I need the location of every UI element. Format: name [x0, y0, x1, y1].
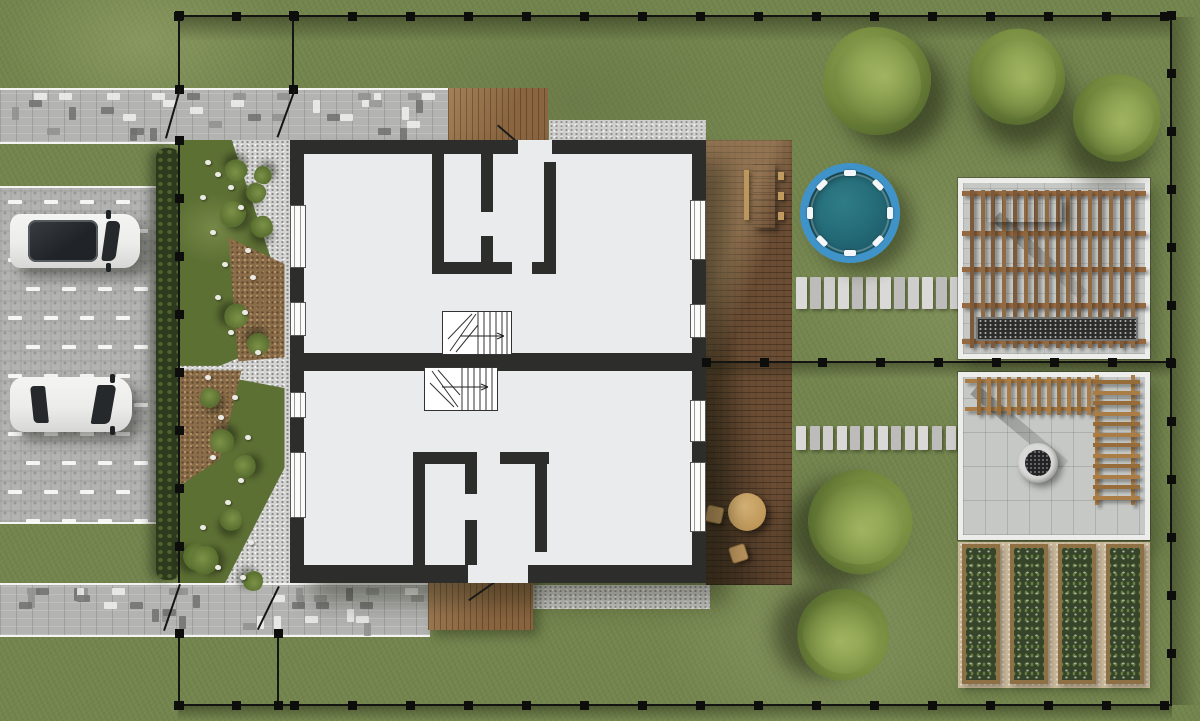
fence-post	[274, 701, 283, 710]
round-table	[728, 493, 766, 531]
pergola-slat	[1093, 475, 1140, 479]
white-stone	[228, 330, 234, 335]
stepping-stone	[810, 426, 820, 450]
lane-dash	[8, 490, 22, 494]
stairs-lower-unit	[424, 367, 498, 411]
bench	[744, 170, 749, 220]
fence-post	[696, 12, 705, 21]
site-plan	[0, 0, 1200, 721]
lane-dash	[80, 316, 94, 320]
interior-wall	[465, 520, 477, 565]
paver-brick	[19, 602, 32, 609]
lane-dash	[44, 432, 58, 436]
car-windshield	[91, 385, 117, 424]
pergola-slat	[1027, 377, 1031, 415]
paver-brick	[36, 588, 49, 595]
pergola-slat	[1093, 485, 1140, 489]
fence-line	[178, 633, 180, 705]
paver-brick	[34, 93, 47, 100]
white-stone	[215, 172, 221, 177]
tree	[780, 572, 907, 699]
paver-brick	[231, 100, 244, 107]
paver-brick	[402, 107, 409, 120]
white-stone	[232, 395, 238, 400]
fence-post	[928, 12, 937, 21]
pergola-slat	[1093, 464, 1140, 468]
lane-dash	[44, 200, 58, 204]
fence-post	[1166, 358, 1175, 367]
fence-post	[406, 12, 415, 21]
fence-post	[754, 701, 763, 710]
lane-dash	[134, 287, 148, 291]
lane-dash	[134, 403, 148, 407]
fence-post	[290, 701, 299, 710]
paver-brick	[313, 100, 320, 113]
fence-post	[175, 252, 184, 261]
lane-dash	[98, 519, 112, 523]
car-mirror	[106, 210, 111, 219]
paver-brick	[364, 623, 371, 636]
pergola-slat	[1093, 412, 1140, 416]
window	[290, 302, 306, 336]
pergola-slat	[1037, 377, 1041, 415]
fence-post	[986, 701, 995, 710]
lane-dash	[62, 519, 76, 523]
lane-dash	[116, 316, 130, 320]
paver-brick	[416, 100, 423, 113]
paver-brick	[305, 616, 318, 623]
tree	[823, 27, 931, 135]
pergola-slat	[1093, 401, 1140, 405]
fence-post	[1167, 533, 1176, 542]
tree	[950, 10, 1084, 144]
interior-wall	[432, 154, 444, 274]
fence-post	[1167, 301, 1176, 310]
paver-brick	[107, 93, 120, 100]
tree	[793, 455, 927, 589]
stepping-stone	[878, 426, 888, 450]
pergola-slat	[1007, 377, 1011, 415]
fence-post	[232, 701, 241, 710]
fence-post	[992, 358, 1001, 367]
pergola-slat	[1093, 380, 1140, 384]
white-stone	[215, 295, 221, 300]
pergola-slat	[987, 377, 991, 415]
fence-post	[1167, 127, 1176, 136]
patio-table	[986, 196, 1062, 222]
fence-post	[1167, 11, 1176, 20]
paver-brick	[179, 616, 186, 629]
fence-post	[754, 12, 763, 21]
fence-post	[1050, 358, 1059, 367]
fence-post	[1044, 701, 1053, 710]
paver-brick	[292, 602, 305, 609]
fence-post	[464, 12, 473, 21]
car-rear-glass	[30, 386, 49, 423]
paver-brick	[277, 93, 290, 100]
lane-dash	[116, 490, 130, 494]
lane-dash	[98, 345, 112, 349]
garden-bed	[1106, 544, 1144, 684]
pergola-slat	[1093, 433, 1140, 437]
fence-post	[175, 629, 184, 638]
fence-post	[638, 701, 647, 710]
car-sedan	[10, 377, 132, 432]
lane-dash	[116, 432, 130, 436]
fence-post	[812, 701, 821, 710]
car-mirror	[110, 426, 115, 435]
window	[290, 452, 306, 518]
white-stone	[228, 185, 234, 190]
paver-brick	[152, 609, 159, 622]
fence-post	[406, 701, 415, 710]
paver-brick	[123, 114, 136, 121]
fence-post	[522, 701, 531, 710]
fence-post	[348, 12, 357, 21]
lane-dash	[26, 287, 40, 291]
house-unit-bottom-floor	[304, 371, 692, 565]
garden-bed	[1058, 544, 1096, 684]
stepping-stone	[936, 277, 947, 309]
stepping-stone	[850, 426, 860, 450]
stepping-stone	[824, 277, 835, 309]
paver-brick	[209, 121, 222, 128]
stepping-stone	[866, 277, 877, 309]
fence-post	[1167, 649, 1176, 658]
white-stone	[238, 205, 244, 210]
paver-brick	[12, 107, 19, 120]
paver-brick	[327, 114, 340, 121]
lane-dash	[98, 461, 112, 465]
car-mirror	[110, 374, 115, 383]
white-stone	[245, 248, 251, 253]
fence-post	[1167, 475, 1176, 484]
paver-brick	[193, 595, 200, 608]
lane-dash	[116, 200, 130, 204]
lane-dash	[134, 519, 148, 523]
white-stone	[240, 575, 246, 580]
white-stone	[218, 415, 224, 420]
interior-wall	[481, 154, 493, 212]
pergola-beam	[962, 267, 1146, 272]
stepping-stone-path-upper	[796, 277, 964, 310]
stool	[778, 212, 784, 220]
paver-brick	[130, 602, 143, 609]
paver-brick	[360, 602, 373, 609]
fence-post	[760, 358, 769, 367]
pool-ladder-tick	[815, 178, 828, 191]
white-stone	[222, 262, 228, 267]
lane-dash	[44, 316, 58, 320]
car-roof-glass	[28, 220, 98, 262]
paver-brick	[369, 100, 382, 107]
pool-ladder-tick	[887, 207, 893, 219]
white-stone	[238, 478, 244, 483]
white-stone	[200, 525, 206, 530]
paver-brick	[408, 93, 421, 100]
paver-brick	[316, 602, 329, 609]
lane-dash	[26, 345, 40, 349]
pool-ladder-tick	[872, 178, 885, 191]
window	[690, 400, 706, 442]
pergola-slat	[1093, 391, 1140, 395]
pergola-slat	[1047, 377, 1051, 415]
stool	[778, 192, 784, 200]
stepping-stone	[880, 277, 891, 309]
white-stone	[248, 540, 254, 545]
car-windshield	[101, 221, 121, 261]
lane-dash	[80, 490, 94, 494]
fence-post	[175, 426, 184, 435]
paver-brick	[112, 588, 125, 595]
interior-wall	[413, 452, 477, 464]
lane-dash	[8, 316, 22, 320]
fence-post	[175, 136, 184, 145]
paver-brick	[340, 114, 353, 121]
pool-ladder-tick	[872, 235, 885, 248]
pool-ladder-tick	[844, 170, 856, 176]
fence-post	[1167, 69, 1176, 78]
garden-beds	[958, 542, 1150, 688]
fence-post	[870, 701, 879, 710]
stepping-stone-path-lower	[796, 426, 960, 452]
white-stone	[200, 195, 206, 200]
stepping-stone	[891, 426, 901, 450]
dining-table	[753, 162, 775, 228]
window	[290, 392, 306, 418]
fence-post	[274, 629, 283, 638]
white-stone	[225, 500, 231, 505]
fence-post	[1102, 701, 1111, 710]
fence-post	[175, 701, 184, 710]
car-mirror	[106, 263, 111, 272]
lane-dash	[134, 461, 148, 465]
paver-brick	[29, 100, 42, 107]
paver-brick	[274, 616, 281, 629]
paver-brick	[422, 93, 435, 100]
fence-shadow	[178, 706, 1172, 720]
tree-canopy-highlight	[791, 583, 895, 687]
lane-dash	[44, 490, 58, 494]
interior-wall	[465, 464, 477, 494]
paver-brick	[150, 128, 157, 141]
paver-brick	[131, 128, 144, 135]
fence-post	[175, 310, 184, 319]
fence-line	[178, 140, 180, 583]
interior-wall	[432, 262, 512, 274]
window	[690, 462, 706, 532]
lane-dash	[62, 287, 76, 291]
paver-brick	[356, 616, 369, 623]
fence-post	[175, 542, 184, 551]
pergola-slat	[970, 190, 974, 348]
lane-dash	[8, 432, 22, 436]
stairs-upper-unit	[442, 311, 512, 355]
garden-bed	[1010, 544, 1048, 684]
pergola-slat	[1017, 377, 1021, 415]
white-stone	[255, 350, 261, 355]
stepping-stone	[946, 426, 956, 450]
stepping-stone	[810, 277, 821, 309]
white-stone	[205, 160, 211, 165]
fence-post	[1167, 185, 1176, 194]
white-stone	[215, 565, 221, 570]
fence-post	[638, 12, 647, 21]
pergola-slat	[997, 377, 1001, 415]
pergola-slat	[1093, 422, 1140, 426]
stepping-stone	[796, 277, 807, 309]
gravel-apron	[549, 120, 706, 141]
pool-ladder-tick	[807, 207, 813, 219]
stepping-stone	[837, 426, 847, 450]
entry-porch-top	[448, 88, 548, 148]
paver-brick	[104, 602, 117, 609]
white-stone	[242, 310, 248, 315]
round-pool	[800, 163, 900, 263]
stepping-stone	[918, 426, 928, 450]
white-stone	[210, 230, 216, 235]
window	[290, 205, 306, 268]
pergola-slat	[1093, 454, 1140, 458]
pool-ladder-tick	[844, 250, 856, 256]
fence-line	[178, 15, 1172, 17]
paver-brick	[296, 588, 303, 601]
fence-post	[934, 358, 943, 367]
house	[290, 140, 706, 583]
pergola-beam	[962, 231, 1146, 236]
interior-wall	[544, 162, 556, 274]
window	[690, 200, 706, 260]
fence-post	[1108, 358, 1117, 367]
white-stone	[250, 275, 256, 280]
interior-wall	[532, 262, 556, 274]
stepping-stone	[796, 426, 806, 450]
paver-brick	[47, 128, 60, 135]
lane-dash	[26, 519, 40, 523]
pergola-slat	[1077, 377, 1081, 415]
stepping-stone	[864, 426, 874, 450]
pergola-slat	[977, 377, 981, 415]
fence-line	[178, 704, 1172, 706]
white-stone	[210, 455, 216, 460]
pergola-slat	[1087, 377, 1091, 415]
grill-bed	[976, 317, 1138, 341]
fence-post	[522, 12, 531, 21]
fence-line	[292, 15, 294, 89]
stepping-stone	[905, 426, 915, 450]
fence-line	[277, 633, 279, 705]
paver-brick	[101, 107, 114, 114]
fence-line	[178, 15, 180, 89]
tree-canopy-highlight	[805, 467, 915, 577]
fence-post	[812, 12, 821, 21]
pergola-beam	[962, 303, 1146, 308]
fence-post	[1044, 12, 1053, 21]
pergola-slat	[1093, 443, 1140, 447]
window	[690, 304, 706, 338]
stool	[778, 172, 784, 180]
stepping-stone	[922, 277, 933, 309]
paver-brick	[233, 93, 246, 100]
fence-post	[580, 701, 589, 710]
fence-post	[702, 358, 711, 367]
white-stone	[205, 375, 211, 380]
lane-dash	[80, 200, 94, 204]
fence-post	[175, 484, 184, 493]
paver-brick	[69, 107, 76, 120]
fence-post	[175, 368, 184, 377]
fire-pit-bowl	[1025, 450, 1051, 476]
fence-post	[1167, 417, 1176, 426]
stepping-stone	[838, 277, 849, 309]
entry-door-opening	[518, 140, 552, 154]
fence-post	[175, 194, 184, 203]
tree	[1063, 64, 1172, 173]
hedge-row	[156, 148, 180, 580]
fence-post	[696, 701, 705, 710]
lane-dash	[98, 287, 112, 291]
paver-brick	[248, 114, 261, 121]
stepping-stone	[932, 426, 942, 450]
fence-post	[348, 701, 357, 710]
fence-post	[175, 11, 184, 20]
interior-wall	[535, 452, 547, 552]
paver-brick	[378, 128, 391, 135]
lane-dash	[80, 432, 94, 436]
paver-brick	[347, 609, 354, 622]
fence-post	[986, 12, 995, 21]
fence-post	[289, 11, 298, 20]
stepping-stone	[908, 277, 919, 309]
car-suv	[10, 214, 140, 268]
fence-post	[1160, 701, 1169, 710]
pool-ladder-tick	[815, 235, 828, 248]
tree-canopy-highlight	[962, 22, 1072, 132]
pergola-slat	[1093, 496, 1140, 500]
fence-post	[1167, 591, 1176, 600]
fence-post	[870, 12, 879, 21]
walkway-top	[0, 88, 452, 144]
entry-door-opening	[468, 565, 528, 583]
pergola-slat	[1067, 377, 1071, 415]
fence-post	[464, 701, 473, 710]
fence-post	[1167, 243, 1176, 252]
interior-wall	[413, 452, 425, 565]
paver-brick	[190, 107, 203, 114]
white-stone	[245, 435, 251, 440]
fence-post	[928, 701, 937, 710]
stepping-stone	[894, 277, 905, 309]
paver-brick	[358, 93, 371, 100]
fence-post	[818, 358, 827, 367]
lane-dash	[134, 345, 148, 349]
stepping-stone	[823, 426, 833, 450]
lane-dash	[62, 461, 76, 465]
paver-brick	[77, 595, 90, 602]
garden-bed	[962, 544, 1000, 684]
paver-brick	[243, 623, 256, 630]
paver-brick	[187, 93, 200, 100]
fence-post	[876, 358, 885, 367]
pergola-slat	[1057, 377, 1061, 415]
paver-brick	[407, 121, 420, 128]
lane-dash	[62, 345, 76, 349]
lane-dash	[26, 461, 40, 465]
fence-post	[580, 12, 589, 21]
fence-post	[1102, 12, 1111, 21]
lane-dash	[8, 200, 22, 204]
fence-post	[232, 12, 241, 21]
